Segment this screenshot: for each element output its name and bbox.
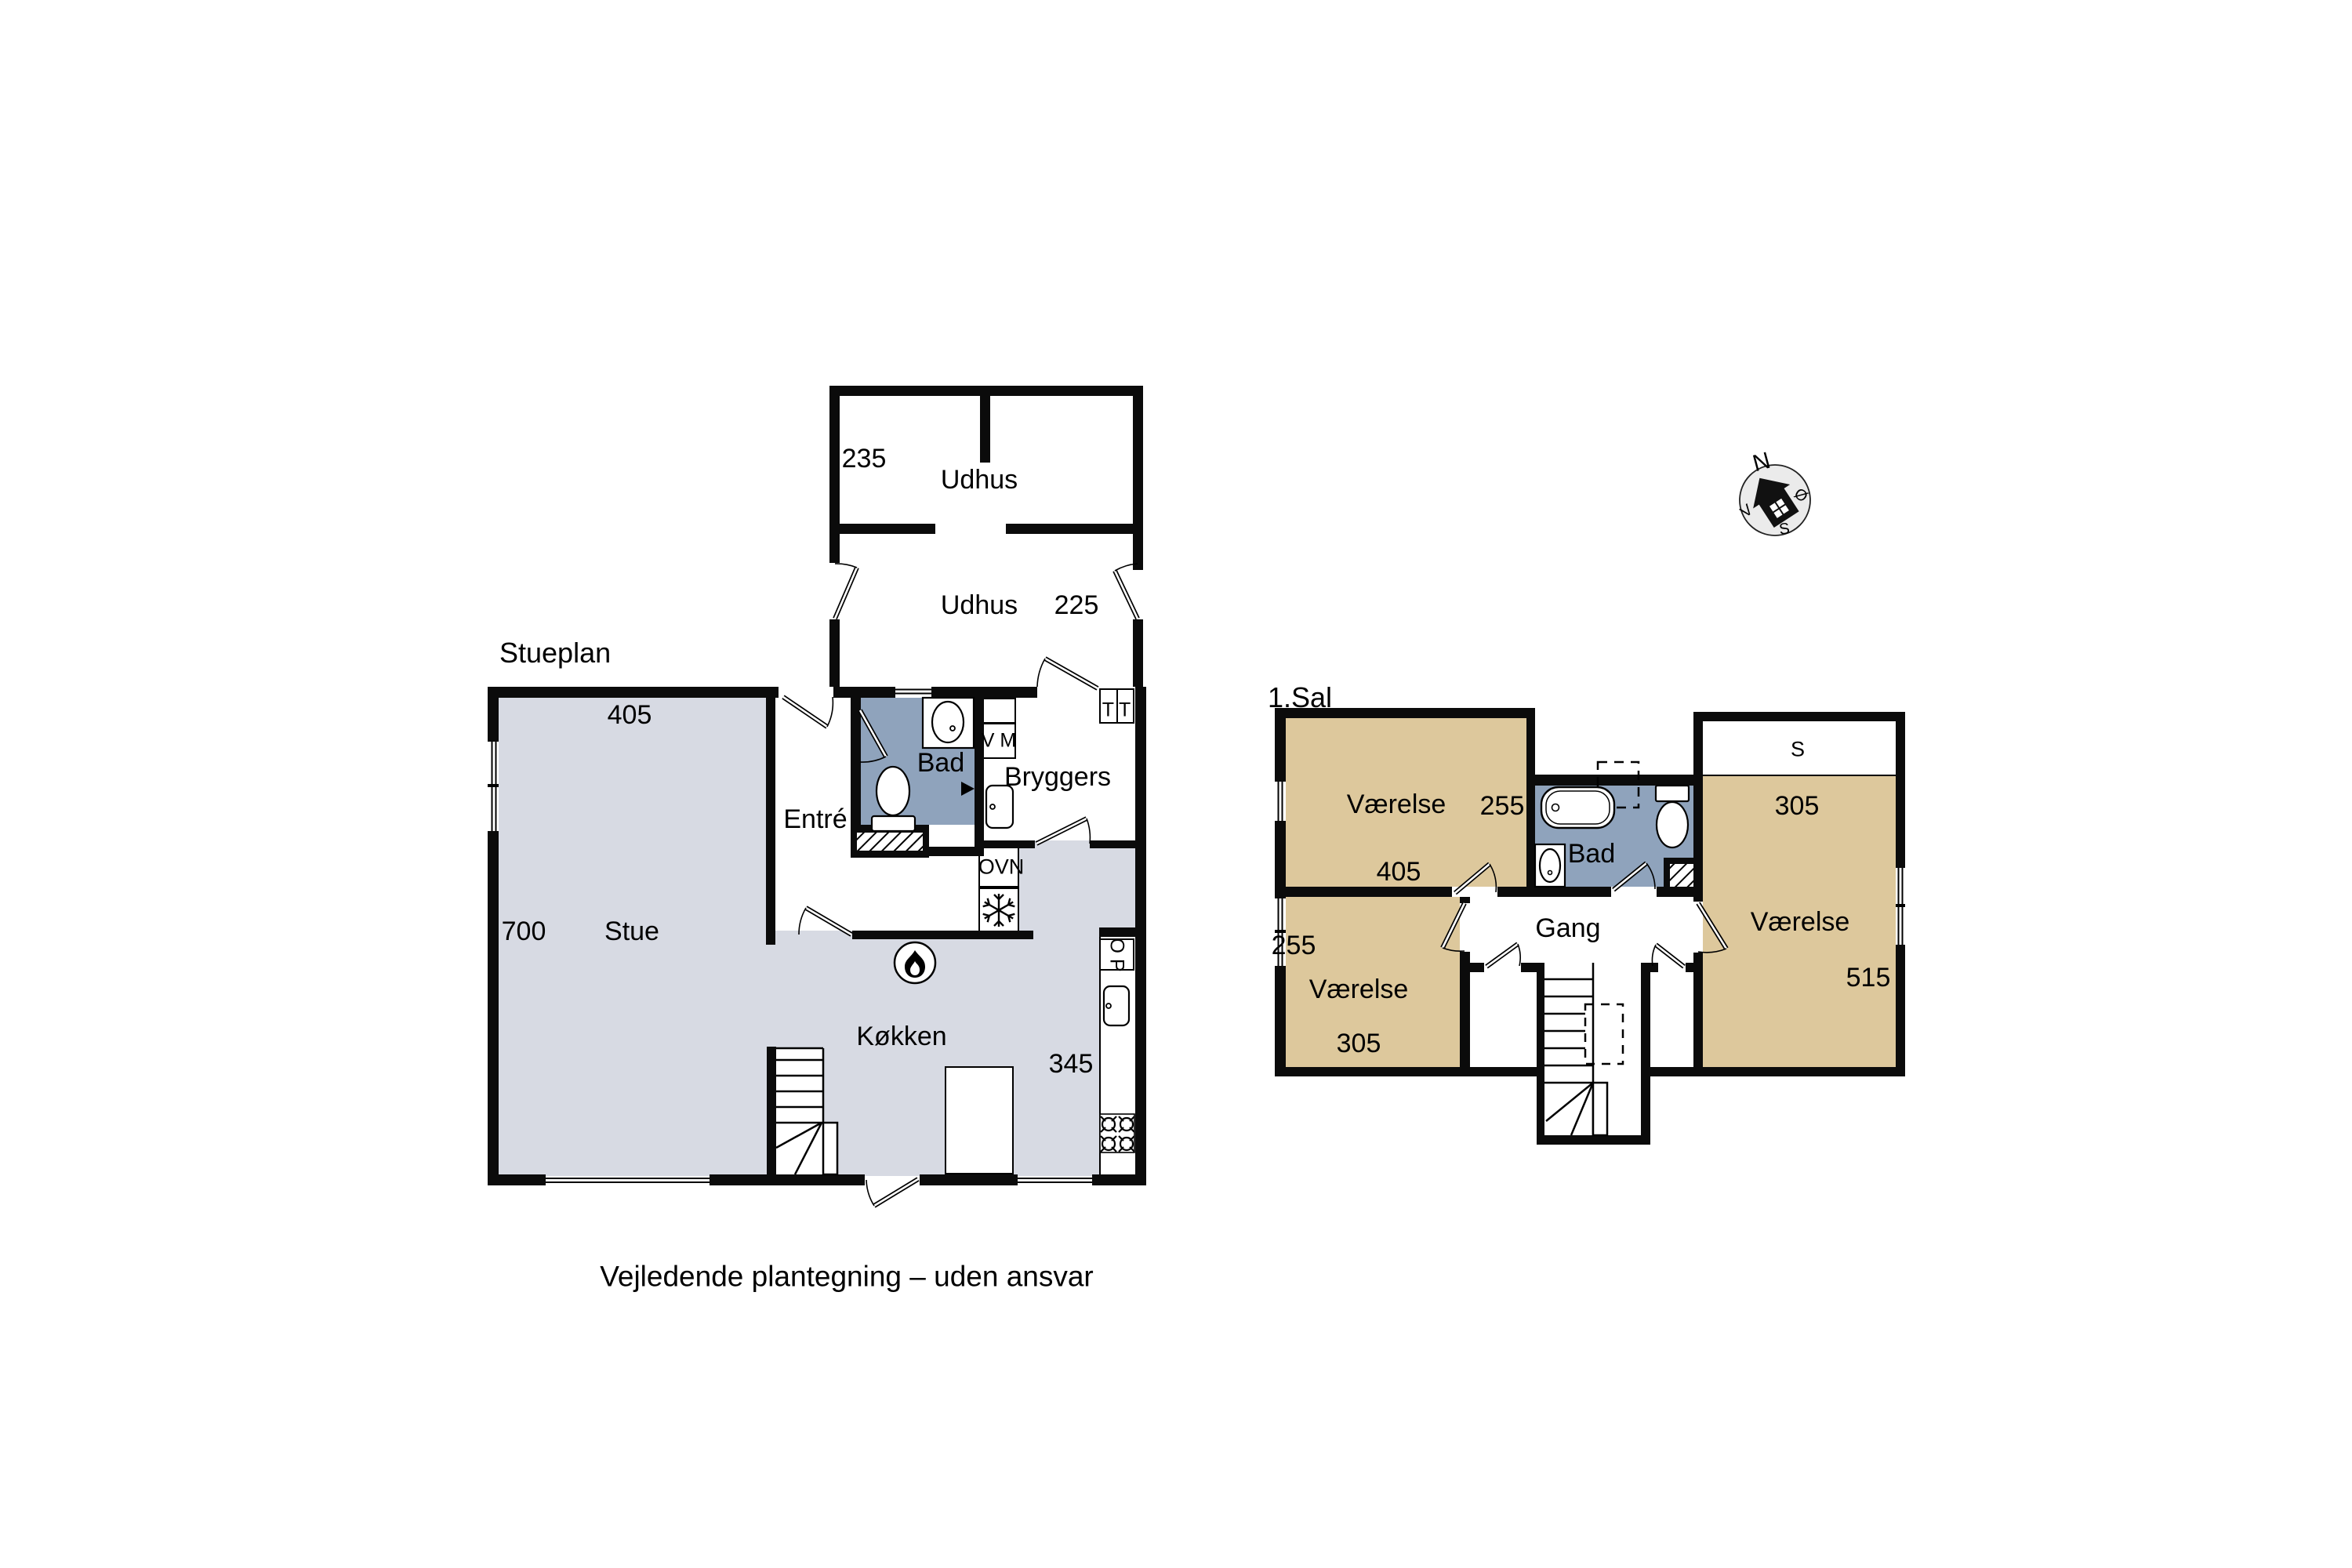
wall-segment <box>1641 963 1650 1145</box>
room-sw-label: Værelse <box>1309 976 1409 1003</box>
compass-north-label: N <box>1751 449 1773 477</box>
disclaimer-note: Vejledende plantegning – uden ansvar <box>600 1262 1094 1291</box>
dryer-label: T T <box>1102 701 1131 720</box>
wall-segment <box>1006 524 1133 534</box>
gang-label: Gang <box>1535 915 1600 942</box>
wall-segment <box>1693 712 1905 721</box>
wall-segment <box>1526 775 1703 786</box>
stair-first-floor <box>1544 963 1641 1135</box>
wall-segment <box>1275 1067 1537 1076</box>
wall-segment <box>1521 963 1537 972</box>
bryggers-label: Bryggers <box>1004 764 1111 790</box>
wall-segment <box>1537 1135 1650 1145</box>
room-e-width-dim: 305 <box>1775 793 1820 819</box>
wall-segment <box>852 931 1033 939</box>
wall-segment <box>829 386 1143 396</box>
wall-segment <box>488 687 499 742</box>
wall-segment <box>1460 897 1470 903</box>
bad-first-label: Bad <box>1568 840 1616 867</box>
udhus-upper-width-dim: 235 <box>842 445 887 472</box>
wall-segment <box>840 524 935 534</box>
wall-segment <box>1275 708 1286 782</box>
wall-segment <box>931 687 1037 698</box>
first-floor-title: 1.Sal <box>1268 684 1332 712</box>
stue-depth-dim: 700 <box>502 918 546 945</box>
freezer-box <box>978 887 1019 932</box>
wall-segment <box>1526 718 1535 897</box>
wall-segment <box>1693 953 1703 1067</box>
udhus-lower-width-dim: 225 <box>1054 592 1099 619</box>
wall-segment <box>923 825 929 858</box>
room-sw-depth-dim: 255 <box>1272 932 1316 959</box>
room-nw-depth-dim: 255 <box>1480 793 1525 819</box>
wall-segment <box>851 825 857 858</box>
kitchen-island <box>945 1066 1014 1174</box>
wall-segment <box>975 698 984 856</box>
stue-width-dim: 405 <box>608 702 652 728</box>
wall-segment <box>488 687 779 698</box>
wall-segment <box>851 825 929 833</box>
wall-segment <box>1135 687 1146 1185</box>
compass-south-label: S <box>1778 521 1791 538</box>
wall-segment <box>488 1174 546 1185</box>
wall-segment <box>1470 963 1484 972</box>
room-sw-width-dim: 305 <box>1337 1030 1381 1057</box>
wall-segment <box>929 847 984 856</box>
wall-segment <box>488 831 499 1185</box>
wall-segment <box>1275 966 1286 1076</box>
wall-segment <box>1896 945 1905 1076</box>
floor-plan-canvas: Stueplan 405 700 Stue Entré Bad Bryggers… <box>0 0 2352 1568</box>
oven-label: OVN <box>978 857 1025 878</box>
wall-segment <box>1133 619 1143 687</box>
wall-segment <box>1090 840 1135 848</box>
wall-segment <box>851 698 861 828</box>
plan-symbol-overlay <box>0 0 2352 1568</box>
wall-segment <box>1650 1067 1905 1076</box>
udhus-upper-label: Udhus <box>941 466 1018 493</box>
wall-segment <box>1537 963 1544 1145</box>
wall-segment <box>1896 712 1905 868</box>
washer-label: V M <box>982 731 1016 751</box>
wall-segment <box>1693 858 1700 887</box>
kokken-width-dim: 345 <box>1049 1051 1094 1077</box>
bad-ground-label: Bad <box>917 750 965 776</box>
wall-segment <box>1460 952 1470 1067</box>
compass-west-label: V <box>1738 502 1756 521</box>
kokken-label: Køkken <box>856 1023 946 1050</box>
compass-east-label: Ø <box>1791 485 1810 505</box>
wall-segment <box>833 687 895 698</box>
wall-segment <box>851 851 929 858</box>
room-e-label: Værelse <box>1751 909 1850 935</box>
udhus-lower-label: Udhus <box>941 592 1018 619</box>
room-nw-width-dim: 405 <box>1377 858 1421 885</box>
dishwasher-label: O P <box>1107 938 1127 971</box>
room-nw-label: Værelse <box>1347 791 1446 818</box>
room-e-depth-dim: 515 <box>1846 964 1891 991</box>
wall-segment <box>1275 887 1452 897</box>
wall-segment <box>1686 963 1693 972</box>
stair-ground-floor <box>776 1048 823 1174</box>
wall-segment <box>829 619 840 687</box>
kitchen-counter-strip <box>1099 937 1135 1174</box>
wall-segment <box>984 840 1035 848</box>
wall-segment <box>920 1174 1018 1185</box>
entre-label: Entré <box>783 806 847 833</box>
room-e-sloped-label: S <box>1791 739 1805 760</box>
wall-segment <box>1133 386 1143 570</box>
wall-segment <box>829 386 840 563</box>
wall-segment <box>766 698 775 945</box>
wall-segment <box>1650 963 1658 972</box>
ground-floor-title: Stueplan <box>499 639 611 667</box>
wall-segment <box>980 396 990 463</box>
wall-segment <box>710 1174 865 1185</box>
stue-label: Stue <box>604 918 659 945</box>
wall-segment <box>1526 887 1611 897</box>
wall-segment <box>767 1047 776 1176</box>
wall-segment <box>1664 858 1670 887</box>
wall-segment <box>1099 927 1135 937</box>
washer-cabinet-top <box>982 698 1016 724</box>
